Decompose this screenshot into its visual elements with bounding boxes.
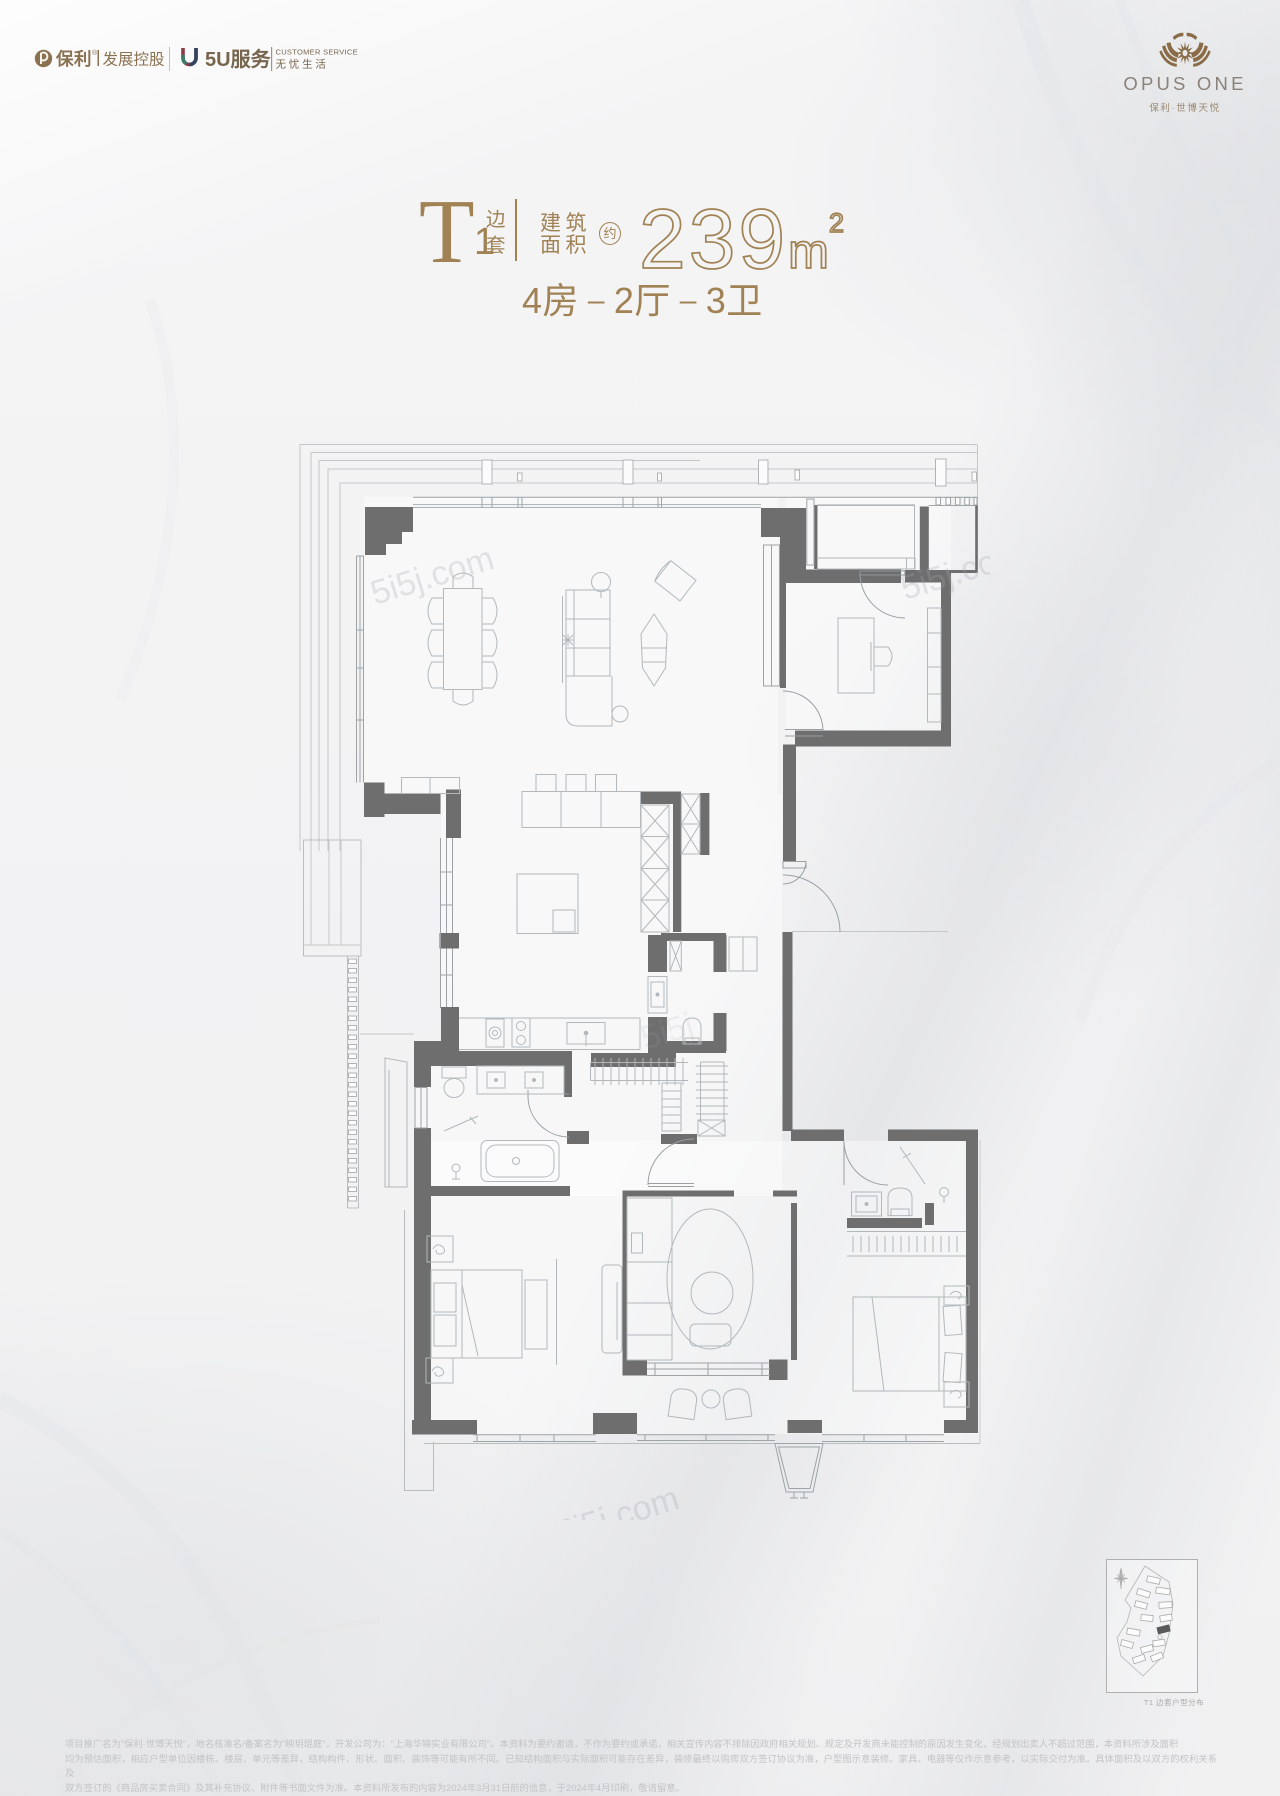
svg-text:®: ® bbox=[92, 49, 98, 57]
svg-text:发展控股: 发展控股 bbox=[103, 51, 165, 69]
svg-text:CUSTOMER SERVICE: CUSTOMER SERVICE bbox=[276, 48, 358, 57]
svg-text:保利: 保利 bbox=[55, 49, 92, 69]
svg-text:5U服务: 5U服务 bbox=[205, 47, 272, 71]
svg-text:5i5j.com: 5i5j.com bbox=[551, 1479, 683, 1520]
svg-text:无忧生活: 无忧生活 bbox=[276, 58, 329, 71]
